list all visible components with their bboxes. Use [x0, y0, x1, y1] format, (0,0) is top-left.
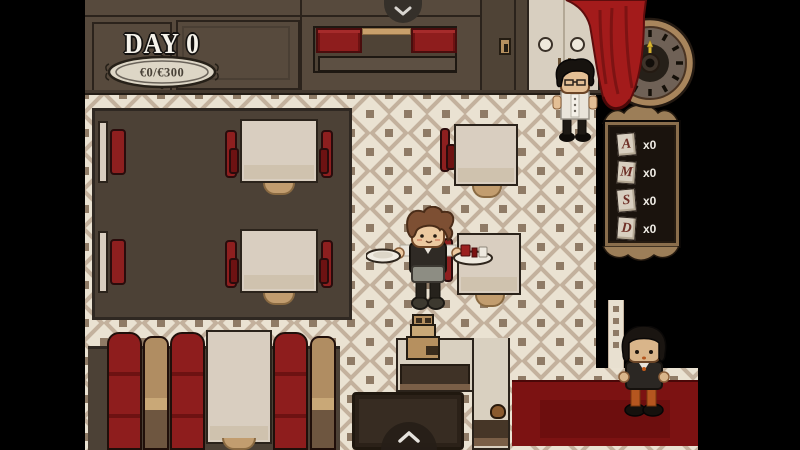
child-mouth [642, 357, 646, 360]
booth-back [143, 336, 169, 450]
dining-table [240, 119, 318, 183]
chair-seat [319, 258, 329, 284]
order-count: x0 [643, 166, 656, 180]
table-apron [244, 165, 314, 179]
waiter-character[interactable] [366, 206, 496, 312]
chevron-down-icon [384, 0, 422, 23]
waiter-shoe [428, 297, 444, 309]
order-board: A x0 M x0 S x0 D x0 [603, 120, 681, 248]
child-leg [631, 388, 640, 406]
top-menu-tab[interactable] [384, 0, 422, 23]
white-cup [479, 247, 487, 257]
chair-seat [319, 148, 329, 174]
cash-register [406, 336, 440, 360]
red-cup [461, 245, 470, 256]
banner-nub [160, 86, 163, 89]
order-list: A x0 M x0 S x0 D x0 [617, 133, 656, 245]
waiter-eye [433, 234, 437, 238]
counter-pastry [490, 404, 506, 419]
booth-table [206, 330, 272, 444]
chair-seat [229, 148, 239, 174]
child-leg [647, 388, 656, 406]
child-hand [619, 372, 629, 382]
table-apron [458, 168, 514, 182]
order-row: A x0 [617, 133, 656, 156]
chef-leg [578, 118, 586, 135]
ticket-icon: S [616, 188, 637, 213]
booth-seat [107, 332, 142, 450]
waiter-blush [417, 239, 422, 241]
bar-table [362, 28, 411, 35]
order-row: S x0 [617, 189, 656, 212]
wall-seam [85, 15, 527, 17]
order-row: M x0 [617, 161, 656, 184]
dining-table [240, 229, 318, 293]
banner-nub [160, 55, 163, 58]
order-count: x0 [643, 194, 656, 208]
plate-center [373, 252, 393, 259]
bar-counter [318, 56, 457, 72]
table-edge [98, 121, 108, 183]
earnings-banner: €0/€300 [105, 54, 219, 90]
order-row: D x0 [617, 217, 656, 240]
bar-bench-cushion [411, 28, 457, 53]
tile-dot [613, 306, 619, 312]
chair [110, 129, 126, 175]
ticket-icon: A [616, 132, 637, 157]
table-apron [244, 275, 314, 289]
wall-divider [514, 0, 516, 95]
bar-bench-cushion [316, 28, 362, 53]
child-eye [635, 350, 639, 354]
switch-slot [504, 44, 508, 52]
child-character[interactable] [617, 326, 671, 422]
curtain [560, 0, 650, 118]
waiter-blush [435, 239, 440, 241]
chair-seat [229, 258, 239, 284]
bottom-menu-tab[interactable] [381, 422, 437, 450]
chef-leg [563, 118, 571, 135]
table-edge [98, 231, 108, 293]
child-tie [642, 367, 646, 371]
register-key [416, 318, 422, 323]
register-key [425, 318, 431, 323]
game-viewport: A x0 M x0 S x0 D x0 [0, 0, 800, 450]
counter-front-trim [474, 438, 508, 446]
booth-seat [273, 332, 308, 450]
child-hand [659, 372, 669, 382]
earnings-text: €0/€300 [140, 66, 184, 80]
condiment [472, 248, 477, 257]
light-switch [499, 38, 511, 55]
order-count: x0 [643, 138, 656, 152]
chevron-up-icon [381, 422, 437, 450]
child-eye [649, 350, 653, 354]
ticket-icon: D [616, 216, 637, 240]
waiter-shoe [412, 297, 428, 309]
booth-seat [170, 332, 205, 450]
tile-dot [613, 318, 619, 324]
waiter-eye [420, 234, 424, 238]
waiter-apron [412, 266, 444, 282]
door-window [538, 37, 553, 52]
board-crest-bottom [600, 246, 682, 262]
wall-divider [300, 0, 302, 95]
order-count: x0 [643, 222, 656, 236]
cafe-table [454, 124, 518, 186]
counter-mat-trim [400, 384, 470, 390]
chair [110, 239, 126, 285]
booth-back [310, 336, 336, 450]
ticket-icon: M [616, 160, 637, 184]
register-drawer [426, 346, 438, 355]
